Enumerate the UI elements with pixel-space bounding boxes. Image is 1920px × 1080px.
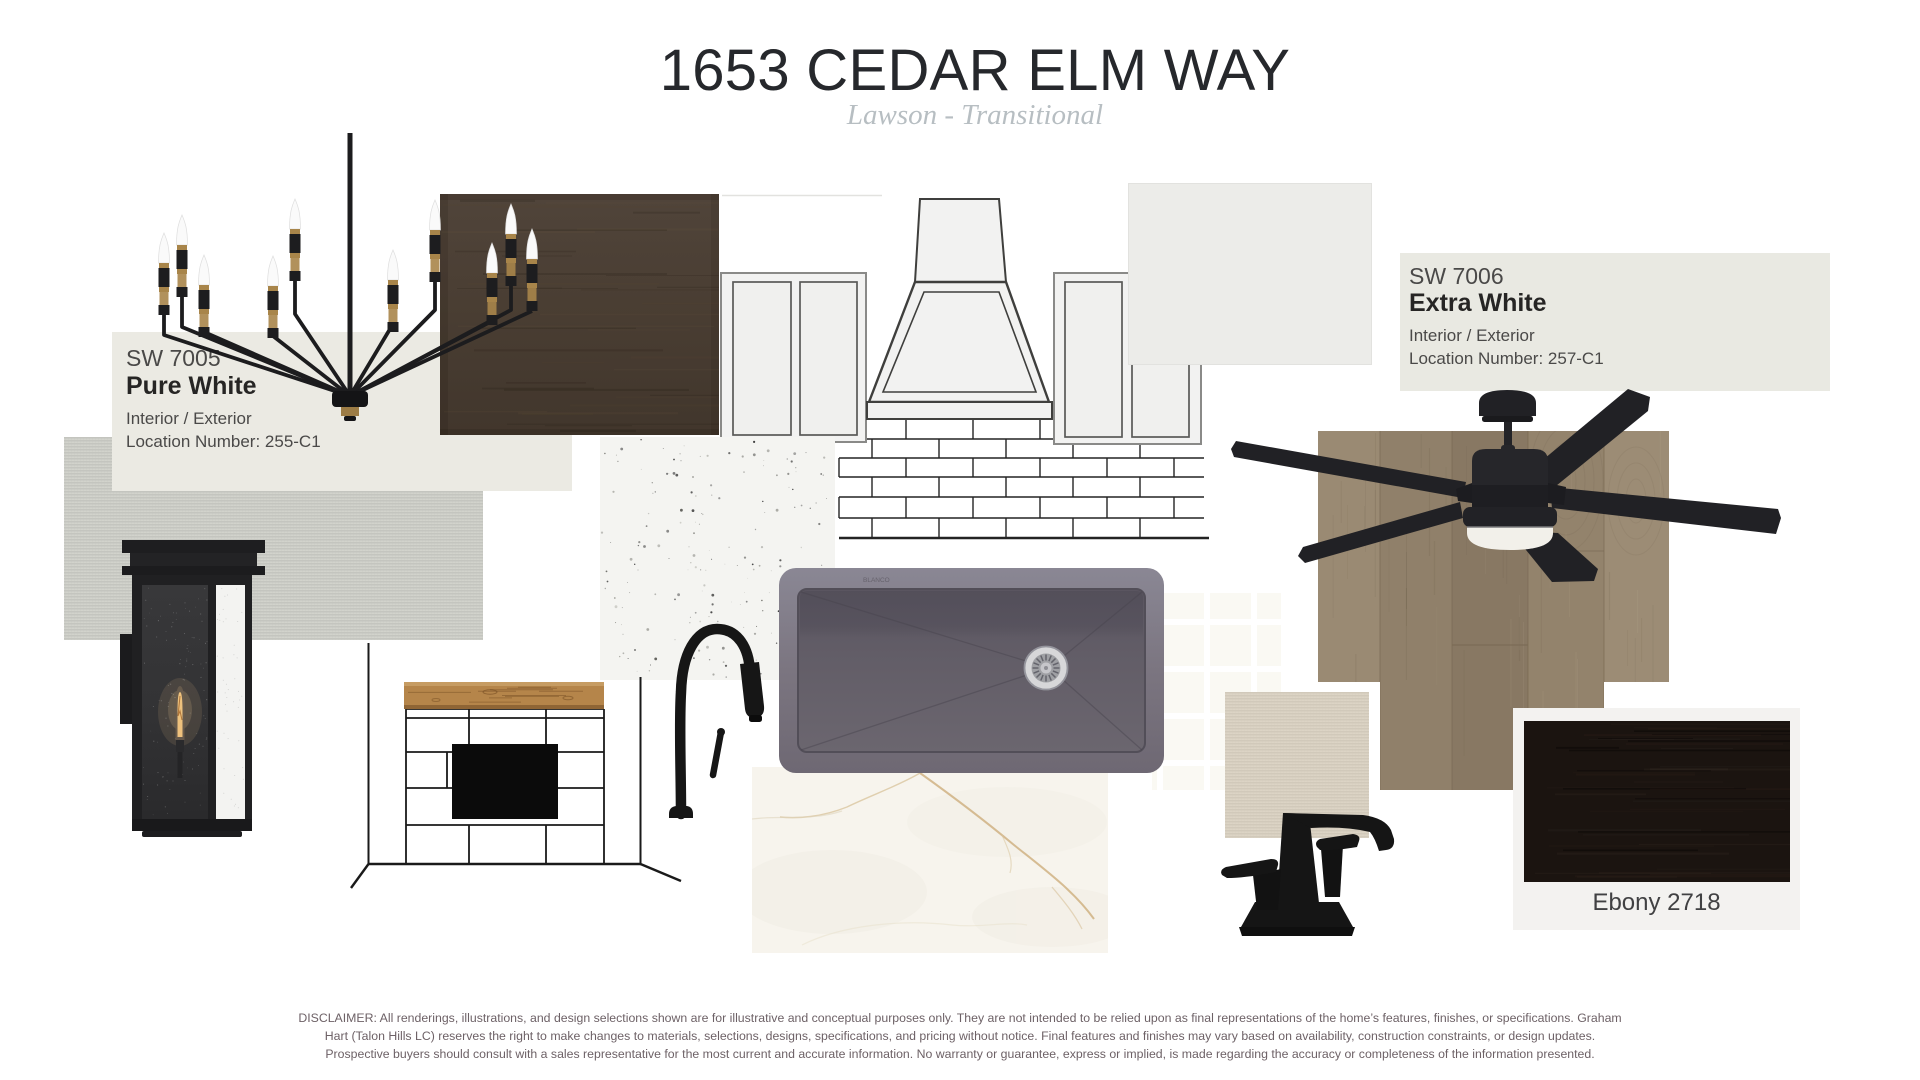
- svg-text:BLANCO: BLANCO: [863, 577, 890, 584]
